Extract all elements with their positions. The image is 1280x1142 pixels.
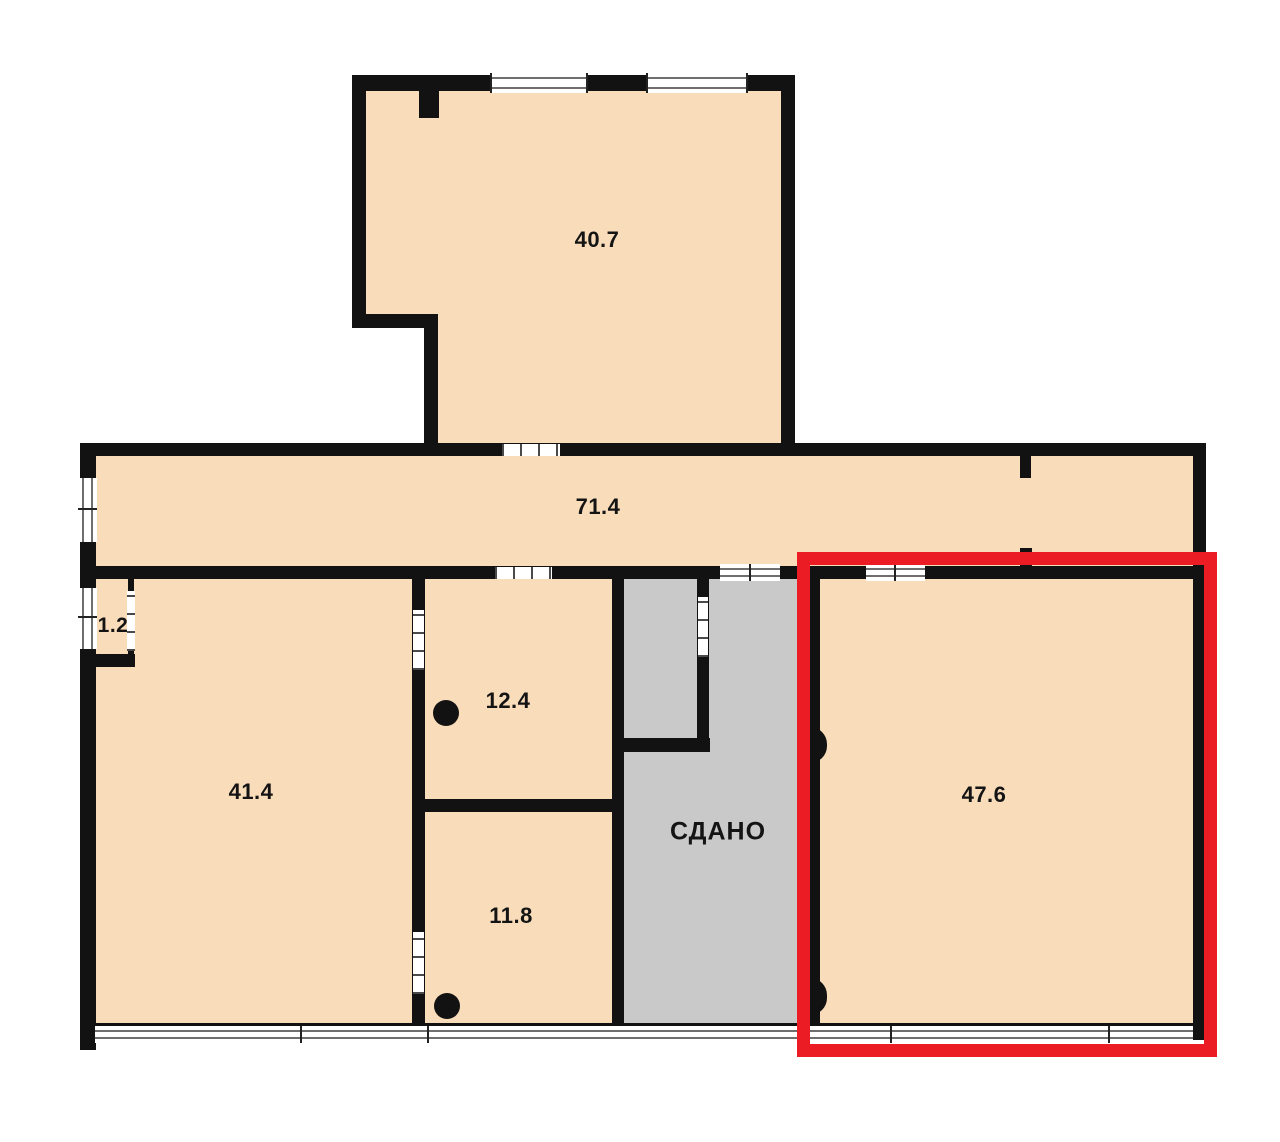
wall-rented-left — [612, 575, 624, 1027]
wall-top-room-left — [352, 75, 366, 327]
room-label-40-7: 40.7 — [575, 227, 620, 253]
window-line — [82, 478, 84, 542]
window-tick — [427, 1026, 429, 1043]
window-tick — [646, 73, 648, 93]
window-top-2 — [646, 73, 748, 93]
room-label-rented: СДАНО — [670, 818, 766, 847]
window-tick — [300, 1026, 302, 1043]
room-label-71-4: 71.4 — [576, 494, 621, 520]
door-12-4-top — [495, 567, 552, 579]
window-line — [490, 87, 588, 89]
window-left-1 — [78, 478, 97, 542]
door-dot-11-8 — [434, 993, 460, 1019]
window-top-1 — [490, 73, 588, 93]
door-rented-inner — [698, 597, 708, 657]
window-tick — [586, 73, 588, 93]
window-tick — [78, 616, 97, 618]
window-line — [91, 588, 93, 649]
window-tick — [749, 564, 751, 581]
wall-stub-corridor-top — [1020, 455, 1031, 478]
wall-rented-inner-bottom — [612, 738, 710, 752]
window-tick — [746, 73, 748, 93]
window-line — [646, 77, 748, 79]
floor-plan: 40.7 71.4 1.2 41.4 12.4 11.8 СДАНО 47.6 — [0, 0, 1280, 1142]
wall-closet-bottom — [80, 654, 135, 667]
window-tick — [490, 73, 492, 93]
window-line — [82, 588, 84, 649]
door-top-room — [502, 444, 560, 456]
wall-stub-top-room — [419, 88, 439, 118]
window-tick — [78, 508, 97, 510]
window-left-2 — [78, 588, 97, 649]
room-label-47-6: 47.6 — [962, 782, 1007, 808]
door-dot-12-4 — [433, 700, 459, 726]
window-rented-top — [720, 564, 780, 581]
window-line — [91, 478, 93, 542]
room-label-12-4: 12.4 — [486, 688, 531, 714]
room-label-11-8: 11.8 — [489, 903, 533, 929]
room-label-41-4: 41.4 — [229, 779, 274, 805]
wall-12-4-11-8-divider — [412, 799, 622, 812]
door-41-4-to-12-4 — [413, 610, 424, 670]
highlight-rectangle — [797, 552, 1217, 1057]
door-41-4-to-11-8 — [413, 932, 424, 994]
window-line — [490, 77, 588, 79]
window-line — [646, 87, 748, 89]
exterior-notch — [352, 327, 425, 455]
wall-top-room-step-v — [424, 314, 438, 455]
room-label-1-2: 1.2 — [98, 614, 129, 638]
wall-top-room-right — [781, 75, 795, 455]
